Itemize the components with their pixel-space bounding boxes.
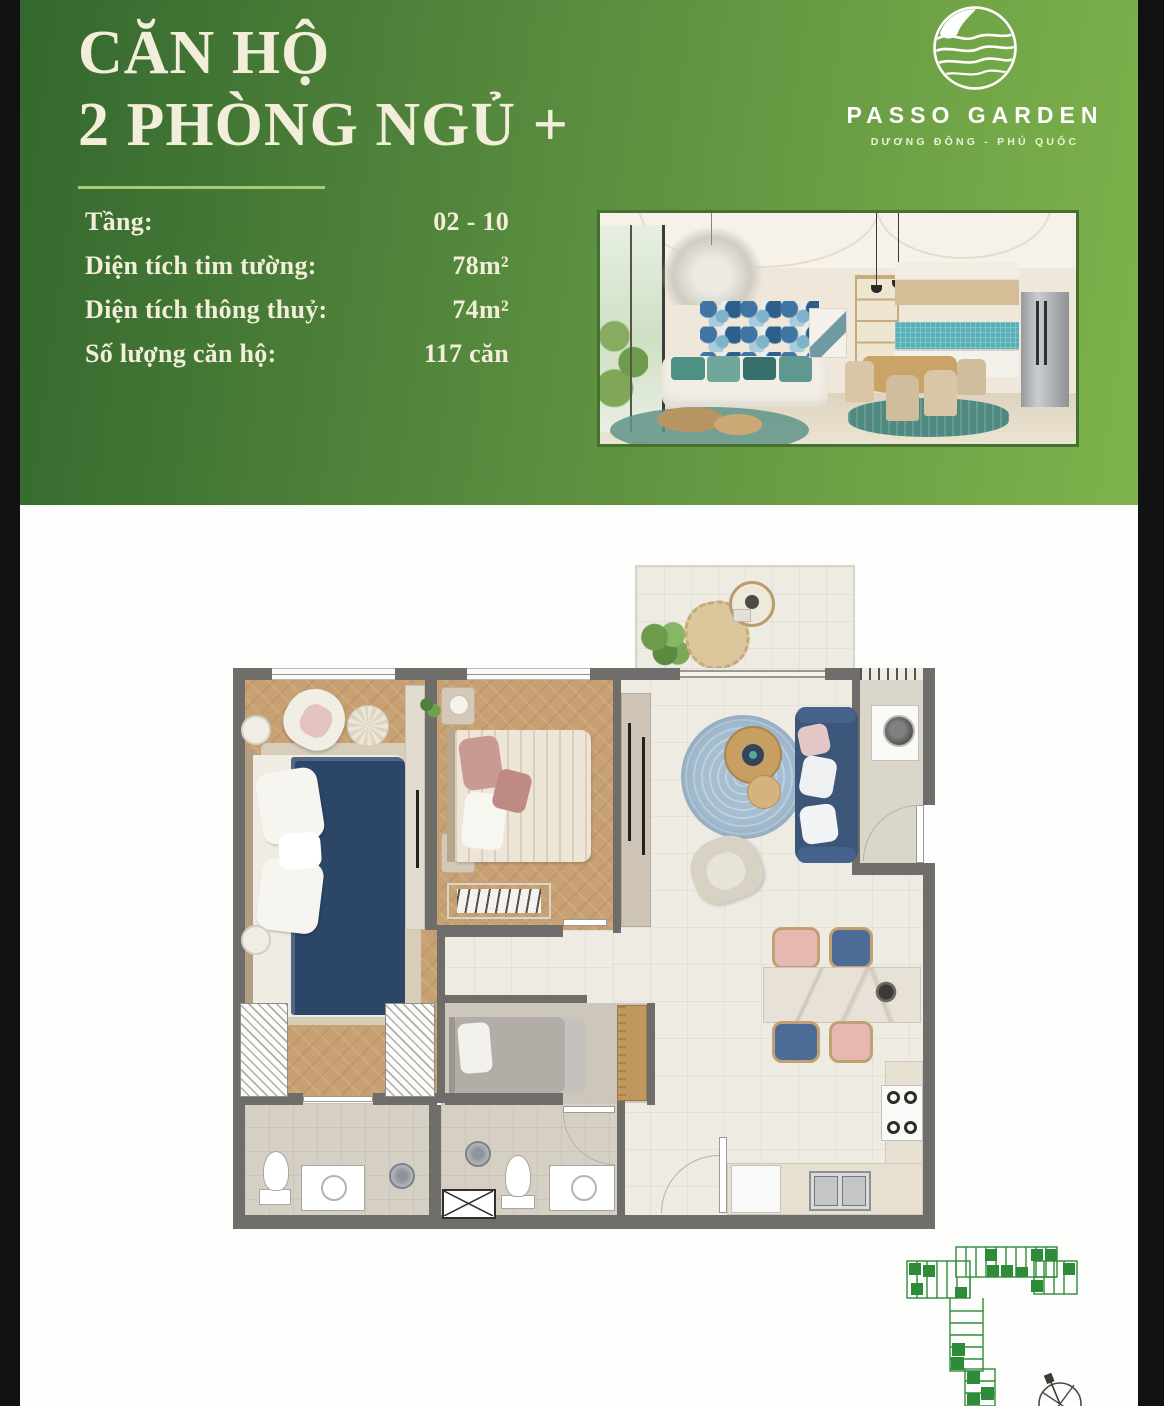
sink-basin xyxy=(814,1176,838,1206)
stove-burner xyxy=(904,1091,917,1104)
photo-sofa-cushion xyxy=(707,356,740,381)
brand-location: DƯƠNG ĐÔNG - PHÚ QUỐC xyxy=(835,136,1115,148)
wardrobe-hatched xyxy=(385,1003,435,1097)
bed2-door-leaf xyxy=(563,919,607,926)
balcony-plant xyxy=(639,619,691,671)
photo-pendant-head xyxy=(871,285,882,293)
wall-bottom xyxy=(233,1215,935,1229)
bed2-bench xyxy=(447,883,551,919)
photo-sofa-cushion xyxy=(743,357,776,380)
photo-mosaic-art xyxy=(700,301,819,359)
master-pouf xyxy=(347,705,389,747)
spec-row-floor: Tầng: 02 - 10 xyxy=(85,200,509,244)
balcony-slider xyxy=(680,670,825,678)
dining-chair-pink xyxy=(772,927,820,969)
photo-window-plants xyxy=(600,305,648,409)
spec-list: Tầng: 02 - 10 Diện tích tim tường: 78m² … xyxy=(85,200,509,376)
photo-doorway-art xyxy=(809,308,847,359)
master-closet-panel xyxy=(405,685,425,930)
sink-basin-round xyxy=(321,1175,347,1201)
sofa-pillow-white xyxy=(798,754,838,799)
spec-value: 02 - 10 xyxy=(433,207,509,237)
spec-label: Tầng: xyxy=(85,207,153,237)
brand-name: PASSO GARDEN xyxy=(835,102,1115,129)
wall xyxy=(590,668,680,680)
wall-bath-top xyxy=(445,1093,563,1105)
spec-label: Diện tích thông thuỷ: xyxy=(85,295,328,325)
bed2-lamp xyxy=(449,695,469,715)
stove-burner xyxy=(904,1121,917,1134)
photo-fridge-handles xyxy=(1036,301,1039,366)
kitchen-hall-door-leaf xyxy=(719,1137,727,1213)
dining-chair-pink xyxy=(829,1021,873,1063)
photo-coffee-table-small xyxy=(714,414,762,435)
wall-right-upper xyxy=(923,668,935,805)
wall-lamp xyxy=(241,715,271,745)
spec-value: 117 căn xyxy=(424,339,509,369)
master-closet-handle xyxy=(416,790,419,868)
stove-burner xyxy=(887,1121,900,1134)
window xyxy=(467,668,590,680)
nesting-table xyxy=(747,775,781,809)
stove-burner xyxy=(887,1091,900,1104)
dining-chair-blue xyxy=(772,1021,820,1063)
title-line-1: CĂN HỘ xyxy=(78,18,569,90)
kitchen-cabinet xyxy=(731,1165,781,1213)
brochure-page: CĂN HỘ 2 PHÒNG NGỦ + Tầng: 02 - 10 Diện … xyxy=(0,0,1164,1406)
photo-sofa-cushion xyxy=(779,356,812,381)
wall-lamp xyxy=(241,925,271,955)
photo-kitchen-uppers xyxy=(895,262,1019,306)
spec-row-unit-count: Số lượng căn hộ: 117 căn xyxy=(85,332,509,376)
wardrobe-hatched xyxy=(240,1003,288,1097)
dining-chair-blue xyxy=(829,927,873,969)
balcony-table-book xyxy=(733,609,751,622)
shower-head xyxy=(465,1141,491,1167)
entry-vent-railing xyxy=(860,668,923,680)
photo-dining-chair xyxy=(957,359,986,396)
right-edge-strip xyxy=(1138,0,1164,1406)
shaft-x-icon xyxy=(444,1191,493,1216)
wall-closet-multiroom xyxy=(437,930,445,1103)
wall-bed2-bottom xyxy=(437,925,563,937)
master-bed-pillow-small xyxy=(278,832,322,871)
spec-value: 78m² xyxy=(452,251,509,281)
coffee-table-dot xyxy=(749,751,757,759)
bed2-headboard xyxy=(447,728,455,862)
dining-centerpiece xyxy=(873,979,899,1005)
sofa-pillow-white xyxy=(799,803,840,846)
spec-row-net-area: Diện tích thông thuỷ: 74m² xyxy=(85,288,509,332)
bath1-door-sill xyxy=(303,1096,373,1102)
living-wardrobe-panels xyxy=(621,693,651,927)
window xyxy=(272,668,395,680)
wall-corridor-bottom xyxy=(852,863,923,875)
hallway-floor xyxy=(437,930,613,1003)
floor-plan xyxy=(233,565,942,1229)
multiroom-wardrobe xyxy=(617,1005,647,1101)
interior-photo xyxy=(597,210,1079,447)
wall xyxy=(825,668,860,680)
toilet-bowl xyxy=(505,1155,531,1197)
wall-bath2-right xyxy=(617,1093,625,1215)
sofa-armrest xyxy=(797,847,856,863)
spec-value: 74m² xyxy=(452,295,509,325)
toilet-tank xyxy=(501,1195,535,1209)
title-underline xyxy=(78,186,325,189)
photo-pendant-lamp xyxy=(876,213,877,285)
toilet-bowl xyxy=(263,1151,289,1191)
wall-multiroom-right xyxy=(647,1003,655,1105)
bed2-plant xyxy=(417,695,441,719)
spec-label: Số lượng căn hộ: xyxy=(85,339,277,369)
wall xyxy=(395,668,467,680)
wall-multiroom-top xyxy=(445,995,587,1003)
wall-right-lower xyxy=(923,863,935,1215)
technical-shaft xyxy=(442,1189,496,1219)
left-edge-strip xyxy=(0,0,20,1406)
toilet-tank xyxy=(259,1189,291,1205)
sink-basin xyxy=(842,1176,866,1206)
page-title: CĂN HỘ 2 PHÒNG NGỦ + xyxy=(78,18,569,162)
photo-window-mullion xyxy=(630,225,632,433)
wave-hill-circle-icon xyxy=(931,4,1019,92)
photo-dining-chair xyxy=(886,375,919,421)
wardrobe-handle xyxy=(642,737,645,855)
photo-dining-chair xyxy=(924,370,957,416)
washer-drum xyxy=(883,715,915,747)
single-bed-pillow xyxy=(457,1022,493,1075)
compass-icon xyxy=(1022,1372,1102,1406)
bath2-door-leaf xyxy=(563,1106,615,1113)
photo-chandelier-wire xyxy=(711,213,712,245)
photo-backsplash xyxy=(895,322,1019,350)
balcony-table-dish xyxy=(745,595,759,609)
brand-logo: PASSO GARDEN DƯƠNG ĐÔNG - PHÚ QUỐC xyxy=(835,4,1115,148)
wall-bed2-right xyxy=(613,680,621,933)
spec-label: Diện tích tim tường: xyxy=(85,251,317,281)
photo-fridge-handles xyxy=(1044,301,1047,366)
shower-head xyxy=(389,1163,415,1189)
sink-basin-round xyxy=(571,1175,597,1201)
wall-between-baths xyxy=(429,1105,441,1215)
wardrobe-handle xyxy=(628,723,631,841)
title-line-2: 2 PHÒNG NGỦ + xyxy=(78,90,569,162)
header-panel: CĂN HỘ 2 PHÒNG NGỦ + Tầng: 02 - 10 Diện … xyxy=(20,0,1138,505)
sofa-armrest xyxy=(797,707,856,723)
photo-sofa-cushion xyxy=(671,357,704,380)
spec-row-gross-area: Diện tích tim tường: 78m² xyxy=(85,244,509,288)
photo-dining-chair xyxy=(845,361,874,403)
